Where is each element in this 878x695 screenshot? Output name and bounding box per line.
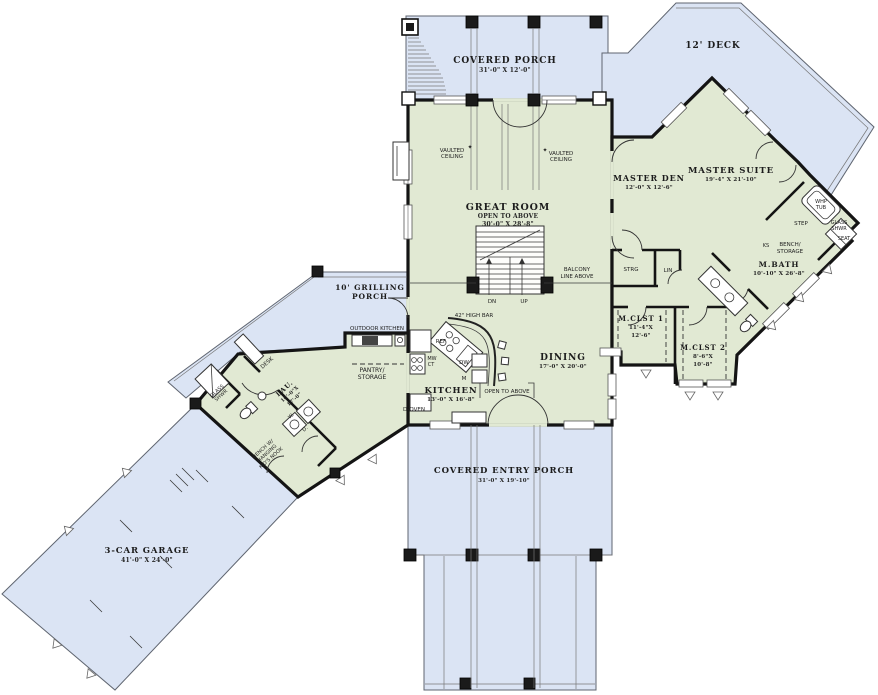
dining-dims: 17'-0" X 20'-0": [539, 364, 587, 370]
bench-storage-1: BENCH/: [779, 242, 800, 248]
step-label: STEP: [794, 221, 808, 227]
whp-tub-label-2: TUB: [815, 205, 827, 211]
m-clst-2-dims-2: 10'-8": [693, 362, 713, 368]
m-clst-1-dims-2: 12'-6": [631, 333, 651, 339]
dining-label: DINING: [540, 353, 586, 363]
dn-label: DN: [488, 299, 496, 305]
kitchen-counter: [452, 412, 486, 423]
m-clst-2-dims-1: 8'-6"X: [693, 354, 713, 360]
ks-label: KS: [763, 243, 769, 249]
dw-label: DW: [459, 360, 469, 366]
garage-label: 3-CAR GARAGE: [105, 546, 190, 556]
open-to-above-label: OPEN TO ABOVE: [484, 389, 530, 395]
garage-dims: 41'-0" X 24'-0": [121, 557, 173, 564]
m-clst-1-dims-1: 11'-4"X: [629, 325, 654, 331]
fireplace: [393, 142, 409, 180]
high-bar-label: 42" HIGH BAR: [455, 313, 494, 319]
master-suite-dims: 19'-4" X 21'-10": [705, 177, 757, 183]
glass-shwr-mb-2: SHWR: [831, 226, 847, 232]
balcony-label-2: LINE ABOVE: [561, 274, 594, 280]
strg-label: STRG: [624, 267, 639, 273]
seat-label: SEAT: [838, 236, 851, 242]
balcony-label-1: BALCONY: [564, 267, 591, 273]
covered-porch-dims: 31'-0" X 12'-0": [479, 67, 531, 74]
refrigerator: [410, 330, 431, 352]
master-den-label: MASTER DEN: [613, 173, 685, 183]
lin-label: LIN: [664, 268, 673, 274]
microwave: [472, 370, 487, 383]
m-clst-2-label: M.CLST 2: [680, 343, 725, 352]
great-room-note: OPEN TO ABOVE: [478, 213, 539, 220]
outdoor-kitchen-fixtures: [352, 335, 405, 346]
outdoor-kitchen-label: OUTDOOR KITCHEN: [350, 326, 404, 332]
m-bath-dims: 10'-10" X 26'-8": [753, 271, 805, 277]
master-suite-label: MASTER SUITE: [688, 166, 774, 176]
range: [410, 354, 425, 374]
ref-label: REF: [436, 339, 446, 345]
up-label: UP: [520, 299, 528, 305]
grilling-porch-label-1: 10' GRILLING: [335, 283, 405, 292]
floor-plan-page: COVERED PORCH 31'-0" X 12'-0" 12' DECK ✦…: [0, 0, 878, 695]
great-room-dims: 30'-0" X 28'-8": [482, 221, 534, 228]
vaulted-ceiling-left-2: CEILING: [441, 154, 463, 160]
m-label: M: [462, 376, 467, 382]
grilling-porch-label-2: PORCH: [352, 292, 388, 301]
entry-porch-dims: 31'-0" X 19'-10": [478, 478, 530, 484]
pantry-label-1: PANTRY/: [360, 367, 386, 374]
d-oven-label: D-OVEN: [403, 407, 425, 413]
vaulted-star-right: ✦: [542, 147, 547, 154]
floor-plan: COVERED PORCH 31'-0" X 12'-0" 12' DECK ✦…: [0, 0, 878, 695]
pantry-label-2: STORAGE: [358, 374, 387, 381]
great-room-label: GREAT ROOM: [466, 202, 550, 213]
deck-label: 12' DECK: [685, 41, 741, 51]
covered-porch-label: COVERED PORCH: [453, 56, 556, 66]
kitchen-label: KITCHEN: [424, 386, 477, 396]
m-clst-1-label: M.CLST 1: [618, 314, 663, 323]
entry-porch-label: COVERED ENTRY PORCH: [434, 466, 574, 476]
vaulted-star-left: ✦: [467, 144, 472, 151]
ct-label: CT: [428, 362, 435, 368]
entry-porch-area: [408, 425, 612, 690]
vaulted-ceiling-right-2: CEILING: [550, 157, 572, 163]
dishwasher: [472, 354, 487, 367]
kitchen-dims: 13'-0" X 16'-8": [427, 397, 475, 403]
master-den-dims: 12'-0" X 12'-6": [625, 185, 673, 191]
staircase: [467, 226, 553, 295]
bench-storage-2: STORAGE: [777, 249, 804, 255]
m-bath-label: M.BATH: [759, 260, 800, 269]
